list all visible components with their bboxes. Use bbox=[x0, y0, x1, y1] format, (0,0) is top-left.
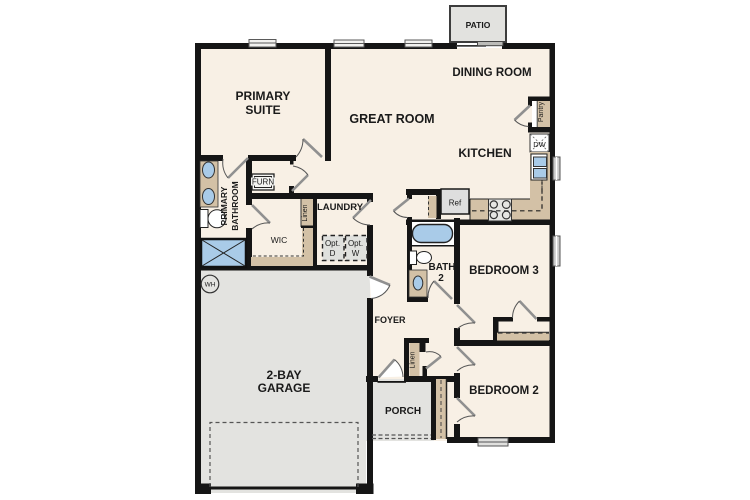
svg-text:PRIMARY: PRIMARY bbox=[219, 186, 229, 225]
svg-text:W: W bbox=[352, 249, 360, 258]
svg-text:Linen: Linen bbox=[302, 204, 309, 221]
svg-text:KITCHEN: KITCHEN bbox=[458, 146, 511, 160]
svg-text:2: 2 bbox=[438, 273, 444, 284]
svg-text:WIC: WIC bbox=[271, 235, 288, 245]
svg-text:BATH: BATH bbox=[428, 262, 455, 273]
svg-text:BEDROOM 2: BEDROOM 2 bbox=[469, 385, 539, 397]
svg-text:LAUNDRY: LAUNDRY bbox=[317, 202, 364, 213]
svg-text:SUITE: SUITE bbox=[245, 103, 280, 117]
svg-text:WH: WH bbox=[205, 282, 216, 289]
svg-text:FURN: FURN bbox=[252, 178, 274, 187]
svg-text:BEDROOM 3: BEDROOM 3 bbox=[469, 265, 539, 277]
svg-text:DINING ROOM: DINING ROOM bbox=[452, 67, 531, 79]
svg-text:GREAT ROOM: GREAT ROOM bbox=[349, 112, 434, 126]
svg-text:GARAGE: GARAGE bbox=[258, 381, 311, 395]
svg-text:DW: DW bbox=[533, 140, 546, 149]
svg-text:Linen: Linen bbox=[410, 351, 417, 368]
svg-text:Opt.: Opt. bbox=[325, 239, 340, 248]
svg-text:Ref: Ref bbox=[449, 199, 462, 208]
svg-text:PORCH: PORCH bbox=[385, 406, 421, 417]
svg-text:FOYER: FOYER bbox=[374, 315, 406, 325]
svg-text:Opt.: Opt. bbox=[348, 239, 363, 248]
svg-text:2-BAY: 2-BAY bbox=[267, 368, 302, 382]
svg-text:BATHROOM: BATHROOM bbox=[230, 181, 240, 230]
svg-text:PRIMARY: PRIMARY bbox=[236, 89, 291, 103]
svg-text:Pantry: Pantry bbox=[538, 101, 545, 122]
svg-text:PATIO: PATIO bbox=[466, 20, 491, 30]
svg-text:D: D bbox=[330, 249, 336, 258]
